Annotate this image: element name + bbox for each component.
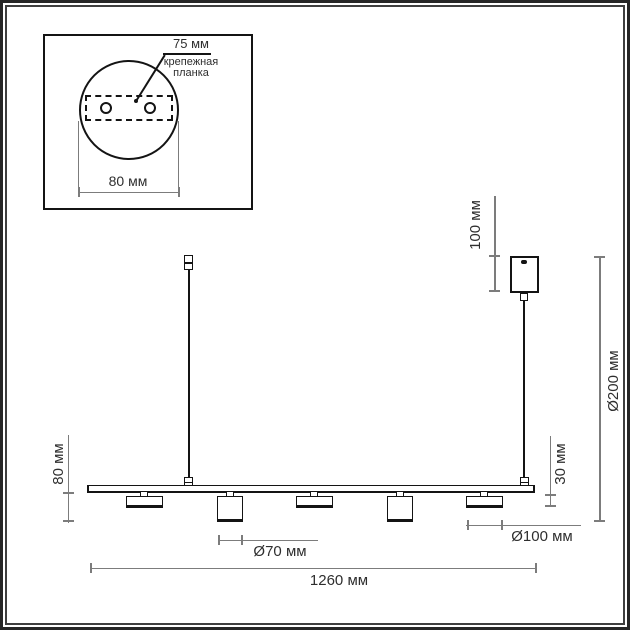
mounting-plate-dashed-rect xyxy=(85,95,173,121)
dim-tick-1260-right xyxy=(535,563,537,573)
mounting-hole-right xyxy=(144,102,156,114)
dimension-drawing: 75 мм крепежная планка 80 мм 100 мм xyxy=(0,0,630,630)
dim-label-bar-length: 1260 мм xyxy=(289,573,389,589)
wire-gripper-bottom-left xyxy=(184,477,193,486)
dim-tick-overall-top xyxy=(594,256,605,258)
spotlight-front-4 xyxy=(387,496,413,522)
dim-label-canopy-height: 100 мм xyxy=(468,190,484,260)
hole-spacing-label: 75 мм xyxy=(161,37,221,51)
dim-line-spot-side-length xyxy=(466,525,581,527)
dim-label-spot-side-height: 30 мм xyxy=(553,434,569,494)
dim-tick-1260-left xyxy=(90,563,92,573)
inset-ext-line-left xyxy=(78,121,80,197)
dim-line-spot-front-height xyxy=(68,435,70,523)
mounting-plate-label: крепежная планка xyxy=(153,57,229,79)
wire-gripper-top-left xyxy=(184,255,193,270)
spotlight-side-3 xyxy=(296,496,333,508)
inset-width-label: 80 мм xyxy=(88,174,168,189)
mounting-hole-left xyxy=(100,102,112,114)
dim-label-spot-front-height: 80 мм xyxy=(51,434,67,494)
dim-tick-overall-bottom xyxy=(594,520,605,522)
dim-tick-30-bottom xyxy=(545,505,556,507)
dim-line-canopy-height xyxy=(494,196,496,291)
spotlight-side-1 xyxy=(126,496,163,508)
wire-gripper-bottom-right xyxy=(520,477,529,486)
leader-underline xyxy=(163,53,211,55)
dim-line-bar-length xyxy=(90,568,537,570)
dim-tick-canopy-top xyxy=(489,255,500,257)
dim-line-spot-front-diameter xyxy=(218,540,318,542)
dim-tick-canopy-bottom xyxy=(489,290,500,292)
canopy-hole-dot xyxy=(521,260,527,264)
spotlight-front-2 xyxy=(217,496,243,522)
dim-label-spot-side-length: Ø100 мм xyxy=(492,529,592,545)
dim-label-overall-height: Ø200 мм xyxy=(606,336,622,426)
inset-dim-tick-left xyxy=(78,187,80,197)
suspension-wire-right xyxy=(523,300,525,478)
inset-ext-line-right xyxy=(178,121,180,197)
dim-tick-100-left xyxy=(467,520,469,530)
dim-line-overall-height xyxy=(599,257,601,521)
dim-tick-70-left xyxy=(218,535,220,545)
dim-tick-30-top xyxy=(545,494,556,496)
suspension-wire-left xyxy=(188,269,190,478)
inset-dim-tick-right xyxy=(178,187,180,197)
inset-dim-line-80 xyxy=(78,192,179,194)
spotlight-side-5 xyxy=(466,496,503,508)
dim-tick-80-bottom xyxy=(63,520,74,522)
dim-label-spot-front-diameter: Ø70 мм xyxy=(230,544,330,560)
